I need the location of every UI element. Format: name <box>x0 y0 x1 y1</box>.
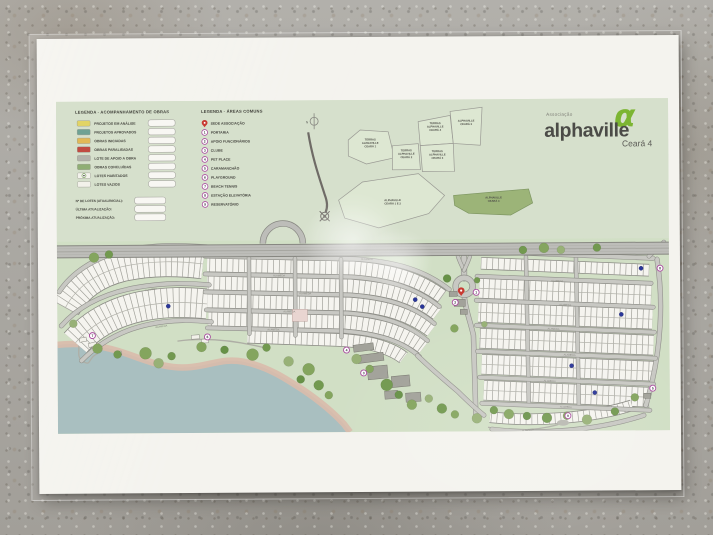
tree <box>490 406 498 414</box>
street-name-label: ALAMEDA <box>522 428 535 433</box>
legend-field-box <box>135 205 166 212</box>
legend-marker-number: 1 <box>204 131 206 135</box>
legend-swatch <box>77 147 90 153</box>
legend-obras-label: OBRAS CONCLUÍDAS <box>94 164 132 169</box>
legend-field-box <box>135 197 166 204</box>
legend-swatch <box>77 155 90 161</box>
street-name-label: ALAMEDA <box>273 274 285 277</box>
tree <box>220 346 228 354</box>
tree <box>481 321 487 327</box>
brand-wordmark: alphaville <box>544 119 630 142</box>
occupied-lot-dot <box>166 304 170 308</box>
map-marker-8: 8 <box>657 265 663 271</box>
inhabited-lot-dot <box>83 175 85 177</box>
tree <box>542 413 552 423</box>
tree <box>69 320 77 328</box>
legend-obras-label: LOTE DE APOIO A OBRA <box>94 156 136 160</box>
tree <box>154 358 164 368</box>
legend-obras-label: PROJETOS EM ANÁLISE <box>94 121 136 126</box>
legend-obras-label: PROJETOS APROVADOS <box>94 130 137 134</box>
legend-obras-label: LOTES VAZIOS <box>94 183 120 187</box>
marker-number: 7 <box>91 334 93 338</box>
tree <box>425 395 433 403</box>
lot-block <box>482 363 654 372</box>
legend-count-box <box>148 137 175 144</box>
legend-areas-label: ESTAÇÃO ELEVATÓRIA <box>211 192 251 197</box>
street-name-label: ALAMEDA <box>267 328 279 331</box>
map-marker-4: 4 <box>344 347 350 353</box>
occupied-lot-dot <box>593 390 597 394</box>
legend-swatch <box>77 121 90 127</box>
legend-marker-number: 9 <box>204 203 206 207</box>
brand-phase: Ceará 4 <box>622 138 653 148</box>
building <box>644 393 651 398</box>
pin-hole <box>204 122 206 124</box>
tree <box>395 391 403 399</box>
marker-number: 2 <box>454 301 456 305</box>
tree <box>557 246 565 254</box>
tree <box>474 277 480 283</box>
tree <box>472 413 482 423</box>
legend-areas-label: CLUBE <box>211 149 224 153</box>
legend-obras-title: LEGENDA - ACOMPANHAMENTO DE OBRAS <box>75 109 169 115</box>
occupied-lot-dot <box>639 266 643 270</box>
street-name-label: ALAMEDA <box>283 310 295 313</box>
tree <box>611 407 619 415</box>
marker-number: 1 <box>475 291 477 295</box>
glare-spot <box>365 228 433 296</box>
legend-marker-number: 8 <box>204 194 206 198</box>
map-marker-7: 7 <box>89 333 95 339</box>
legend-areas-row: 7BEACH TENNIS <box>202 183 238 189</box>
tree <box>504 409 514 419</box>
tree <box>196 342 206 352</box>
marker-number: 5 <box>652 386 654 390</box>
street-name-label: ALAMEDA <box>564 353 576 357</box>
legend-field-box <box>135 214 166 221</box>
brand-association: Associação <box>546 112 573 117</box>
tree <box>582 415 592 425</box>
tree <box>523 412 531 420</box>
tree <box>631 393 639 401</box>
map-marker-9: 9 <box>565 413 571 419</box>
legend-swatch <box>77 164 90 170</box>
street-name-label: ALAMEDA <box>547 328 559 332</box>
map-marker-1: 1 <box>473 289 479 295</box>
legend-obras-label: OBRAS INICIADAS <box>94 139 126 143</box>
lot-block <box>481 262 649 271</box>
building <box>460 309 467 314</box>
legend-areas-row: 6PLAYGROUND <box>202 174 236 180</box>
occupied-lot-dot <box>420 305 424 309</box>
map-marker-2: 2 <box>452 299 458 305</box>
marker-number: 8 <box>659 266 661 270</box>
tree <box>437 403 447 413</box>
occupied-lot-dot <box>413 298 417 302</box>
tree <box>450 324 458 332</box>
tree <box>168 352 176 360</box>
building <box>391 375 410 388</box>
marker-number: 6 <box>206 335 208 339</box>
street-name-label: ALAMEDA <box>551 280 563 284</box>
street-name-label: ALAMEDA <box>560 405 572 409</box>
legend-count-box <box>148 128 175 135</box>
legend-count-box <box>148 163 175 170</box>
legend-areas-title: LEGENDA - ÁREAS COMUNS <box>201 109 263 114</box>
photo-scene: 123456789ALAMEDAALAMEDAALAMEDAALAMEDAALA… <box>0 0 713 535</box>
tree <box>297 375 305 383</box>
tree <box>443 274 451 282</box>
legend-count-box <box>148 172 175 179</box>
tree <box>114 350 122 358</box>
tree <box>247 349 259 361</box>
legend-areas-row: 3CLUBE <box>202 147 224 153</box>
legend-areas-row: 1PORTARIA <box>202 129 229 135</box>
legend-field-label: PRÓXIMA ATUALIZAÇÃO: <box>76 215 115 220</box>
legend-obras-label: LOTES HABITADOS <box>94 174 128 178</box>
legend-areas-label: PET PLACE <box>211 158 231 162</box>
legend-areas-label: SEDE ASSOCIAÇÃO <box>211 120 245 125</box>
legend-marker-number: 2 <box>204 140 206 144</box>
tree <box>407 400 417 410</box>
tree <box>381 379 393 391</box>
lot-block <box>479 337 653 346</box>
legend-count-box <box>148 154 175 161</box>
masterplan-map: 123456789ALAMEDAALAMEDAALAMEDAALAMEDAALA… <box>56 98 670 434</box>
tree <box>325 391 333 399</box>
tree <box>539 243 549 253</box>
tree <box>284 356 294 366</box>
marker-number: 9 <box>567 414 569 418</box>
lot-block <box>479 287 651 296</box>
legend-marker-number: 5 <box>204 167 206 171</box>
legend-areas-row: 4PET PLACE <box>202 156 231 162</box>
legend-areas-label: PORTARIA <box>211 131 230 135</box>
map-marker-6: 6 <box>204 334 210 340</box>
document-sheet: 123456789ALAMEDAALAMEDAALAMEDAALAMEDAALA… <box>37 35 682 494</box>
occupied-lot-dot <box>570 364 574 368</box>
pin-hole <box>460 289 462 291</box>
tree <box>92 344 102 354</box>
tree <box>314 380 324 390</box>
inset-area <box>450 107 482 145</box>
legend-obras-label: OBRAS PARALISADAS <box>94 148 133 152</box>
legend-swatch <box>77 129 90 135</box>
legend-marker-number: 3 <box>204 149 206 153</box>
legend-marker-number: 7 <box>204 185 206 189</box>
legend-areas-label: PLAYGROUND <box>211 176 236 180</box>
legend-count-box <box>148 120 175 127</box>
marker-number: 4 <box>346 348 348 352</box>
legend-areas-label: CARAMANCHÃO <box>211 166 240 171</box>
tree <box>262 344 270 352</box>
map-marker-5: 5 <box>650 385 656 391</box>
legend-marker-number: 6 <box>204 176 206 180</box>
legend-count-box <box>148 181 175 188</box>
marker-number: 3 <box>363 371 365 375</box>
legend-swatch <box>77 138 90 144</box>
occupied-lot-dot <box>619 312 623 316</box>
street-name-label: ALAMEDA <box>299 292 311 295</box>
legend-field-label: Nº DE LOTES (ATUAL/INICIAL): <box>76 199 123 203</box>
tree <box>303 363 315 375</box>
legend-areas-label: APOIO FUNCIONÁRIOS <box>211 138 251 143</box>
legend-marker-number: 4 <box>204 158 206 162</box>
street-name-label: ALAMEDA <box>544 380 556 384</box>
building <box>191 335 199 340</box>
legend-count-box <box>148 146 175 153</box>
tree <box>140 347 152 359</box>
tree <box>105 251 113 259</box>
building <box>449 291 457 296</box>
street-name-label: ALAMEDA <box>559 303 571 307</box>
lot-block <box>478 311 652 320</box>
inset-area-label: ALPHAVILLECEARÁ 1 E 2 <box>384 198 401 206</box>
tree <box>519 246 527 254</box>
tree <box>89 253 99 263</box>
tree <box>451 410 459 418</box>
tree <box>352 354 362 364</box>
map-print: 123456789ALAMEDAALAMEDAALAMEDAALAMEDAALA… <box>56 98 670 434</box>
legend-areas-label: BEACH TENNIS <box>211 185 238 189</box>
legend-field-label: ÚLTIMA ATUALIZAÇÃO: <box>76 206 112 211</box>
map-marker-3: 3 <box>361 370 367 376</box>
tree <box>593 244 601 252</box>
lot-block <box>484 389 650 398</box>
legend-areas-label: RESERVATÓRIO <box>211 202 239 207</box>
legend-swatch <box>77 182 90 188</box>
